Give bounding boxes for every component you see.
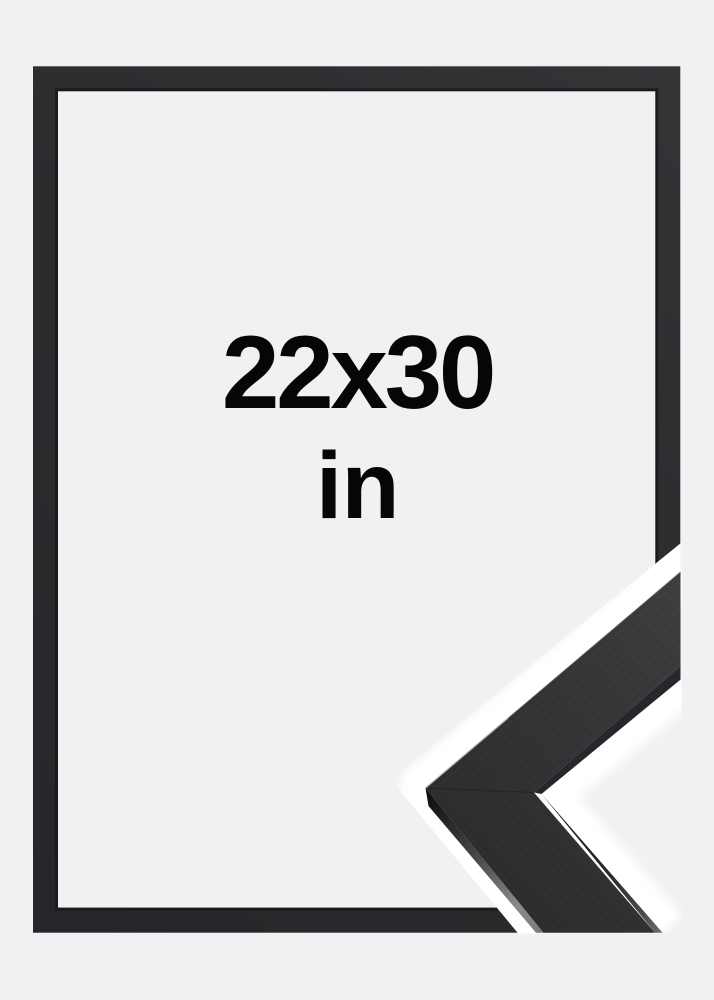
svg-text:in: in bbox=[316, 433, 399, 539]
svg-text:22x30: 22x30 bbox=[222, 314, 493, 430]
